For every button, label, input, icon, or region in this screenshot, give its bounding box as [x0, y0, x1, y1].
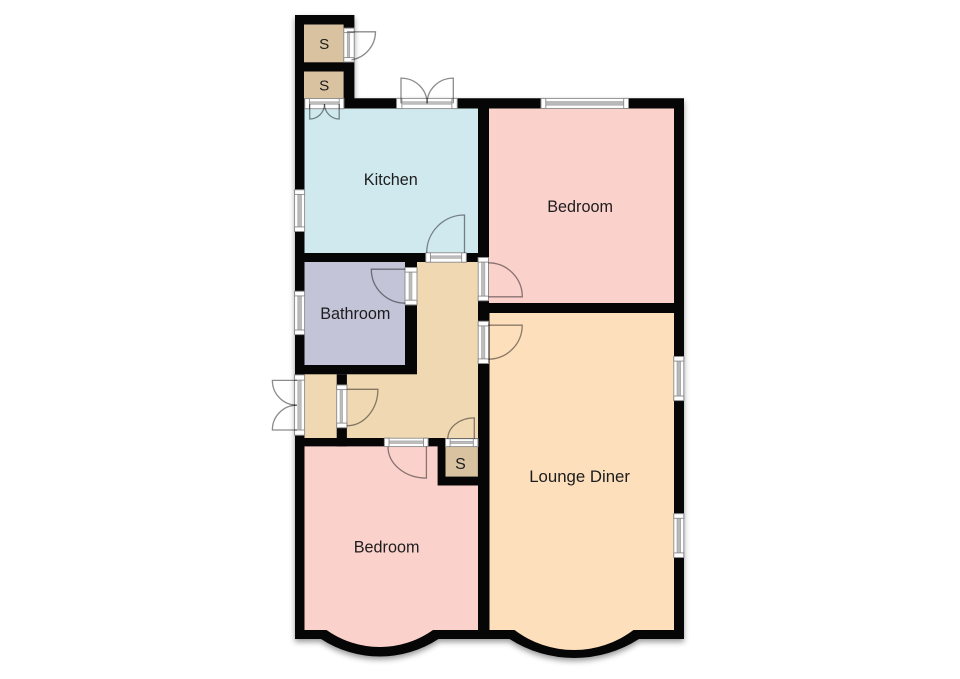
- svg-text:Bathroom: Bathroom: [320, 305, 390, 323]
- svg-text:S: S: [455, 456, 466, 473]
- svg-text:Kitchen: Kitchen: [364, 171, 418, 189]
- svg-text:S: S: [319, 36, 329, 53]
- svg-text:Bedroom: Bedroom: [547, 198, 613, 216]
- svg-text:Lounge Diner: Lounge Diner: [529, 467, 630, 486]
- svg-text:Bedroom: Bedroom: [354, 539, 420, 557]
- svg-text:S: S: [319, 78, 329, 95]
